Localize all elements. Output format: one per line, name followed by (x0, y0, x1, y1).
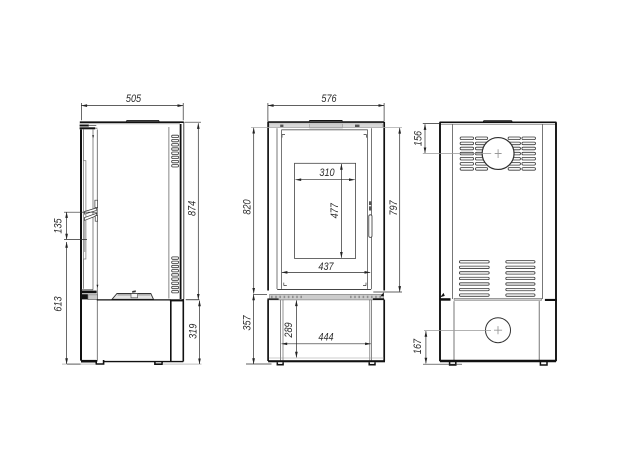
svg-text:477: 477 (329, 202, 341, 218)
svg-text:576: 576 (321, 93, 337, 105)
svg-text:444: 444 (318, 332, 333, 344)
svg-text:289: 289 (283, 322, 295, 338)
svg-text:135: 135 (53, 218, 65, 234)
svg-text:310: 310 (319, 167, 335, 179)
svg-text:319: 319 (188, 324, 200, 339)
svg-text:357: 357 (242, 315, 254, 331)
svg-text:874: 874 (187, 201, 199, 216)
svg-text:437: 437 (318, 261, 334, 273)
svg-text:167: 167 (412, 338, 424, 354)
svg-text:505: 505 (126, 93, 142, 105)
svg-text:613: 613 (53, 296, 65, 312)
svg-text:797: 797 (388, 200, 400, 216)
svg-text:820: 820 (242, 199, 254, 215)
svg-text:156: 156 (412, 130, 424, 146)
